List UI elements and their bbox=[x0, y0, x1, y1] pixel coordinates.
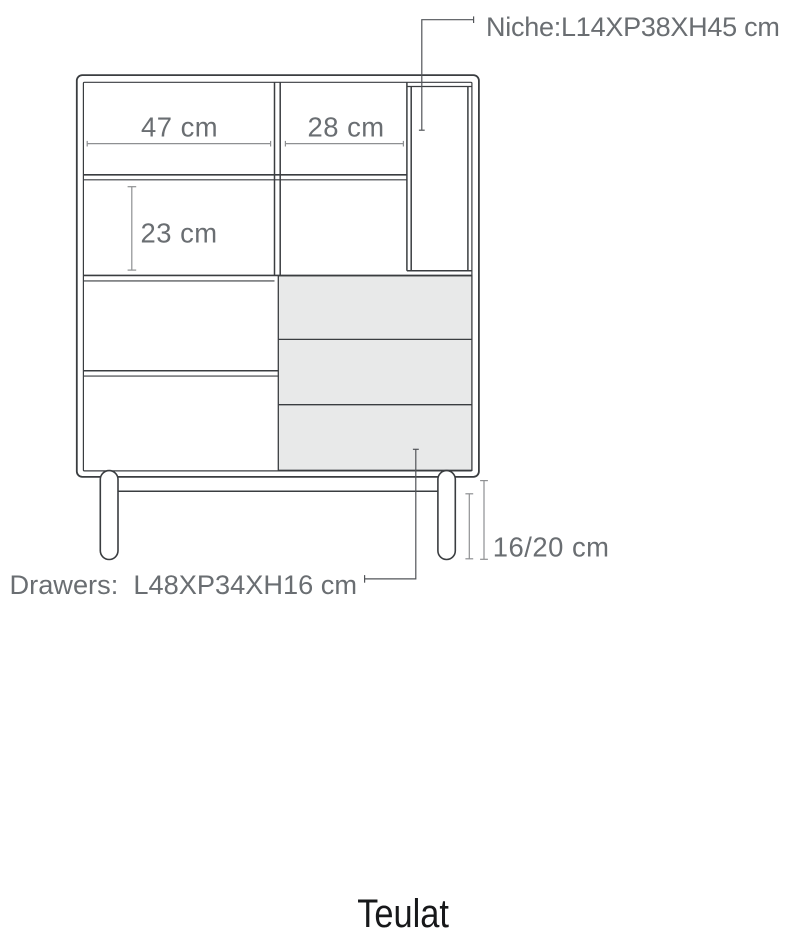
svg-text:47 cm: 47 cm bbox=[141, 112, 218, 143]
svg-text:Drawers: L48XP34XH16 cm: Drawers: L48XP34XH16 cm bbox=[10, 569, 358, 600]
svg-text:Teulat: Teulat bbox=[357, 890, 449, 935]
svg-text:16/20 cm: 16/20 cm bbox=[493, 531, 610, 562]
svg-text:23 cm: 23 cm bbox=[141, 218, 218, 249]
svg-text:28 cm: 28 cm bbox=[308, 112, 385, 143]
svg-text:Niche:L14XP38XH45 cm: Niche:L14XP38XH45 cm bbox=[486, 12, 780, 42]
